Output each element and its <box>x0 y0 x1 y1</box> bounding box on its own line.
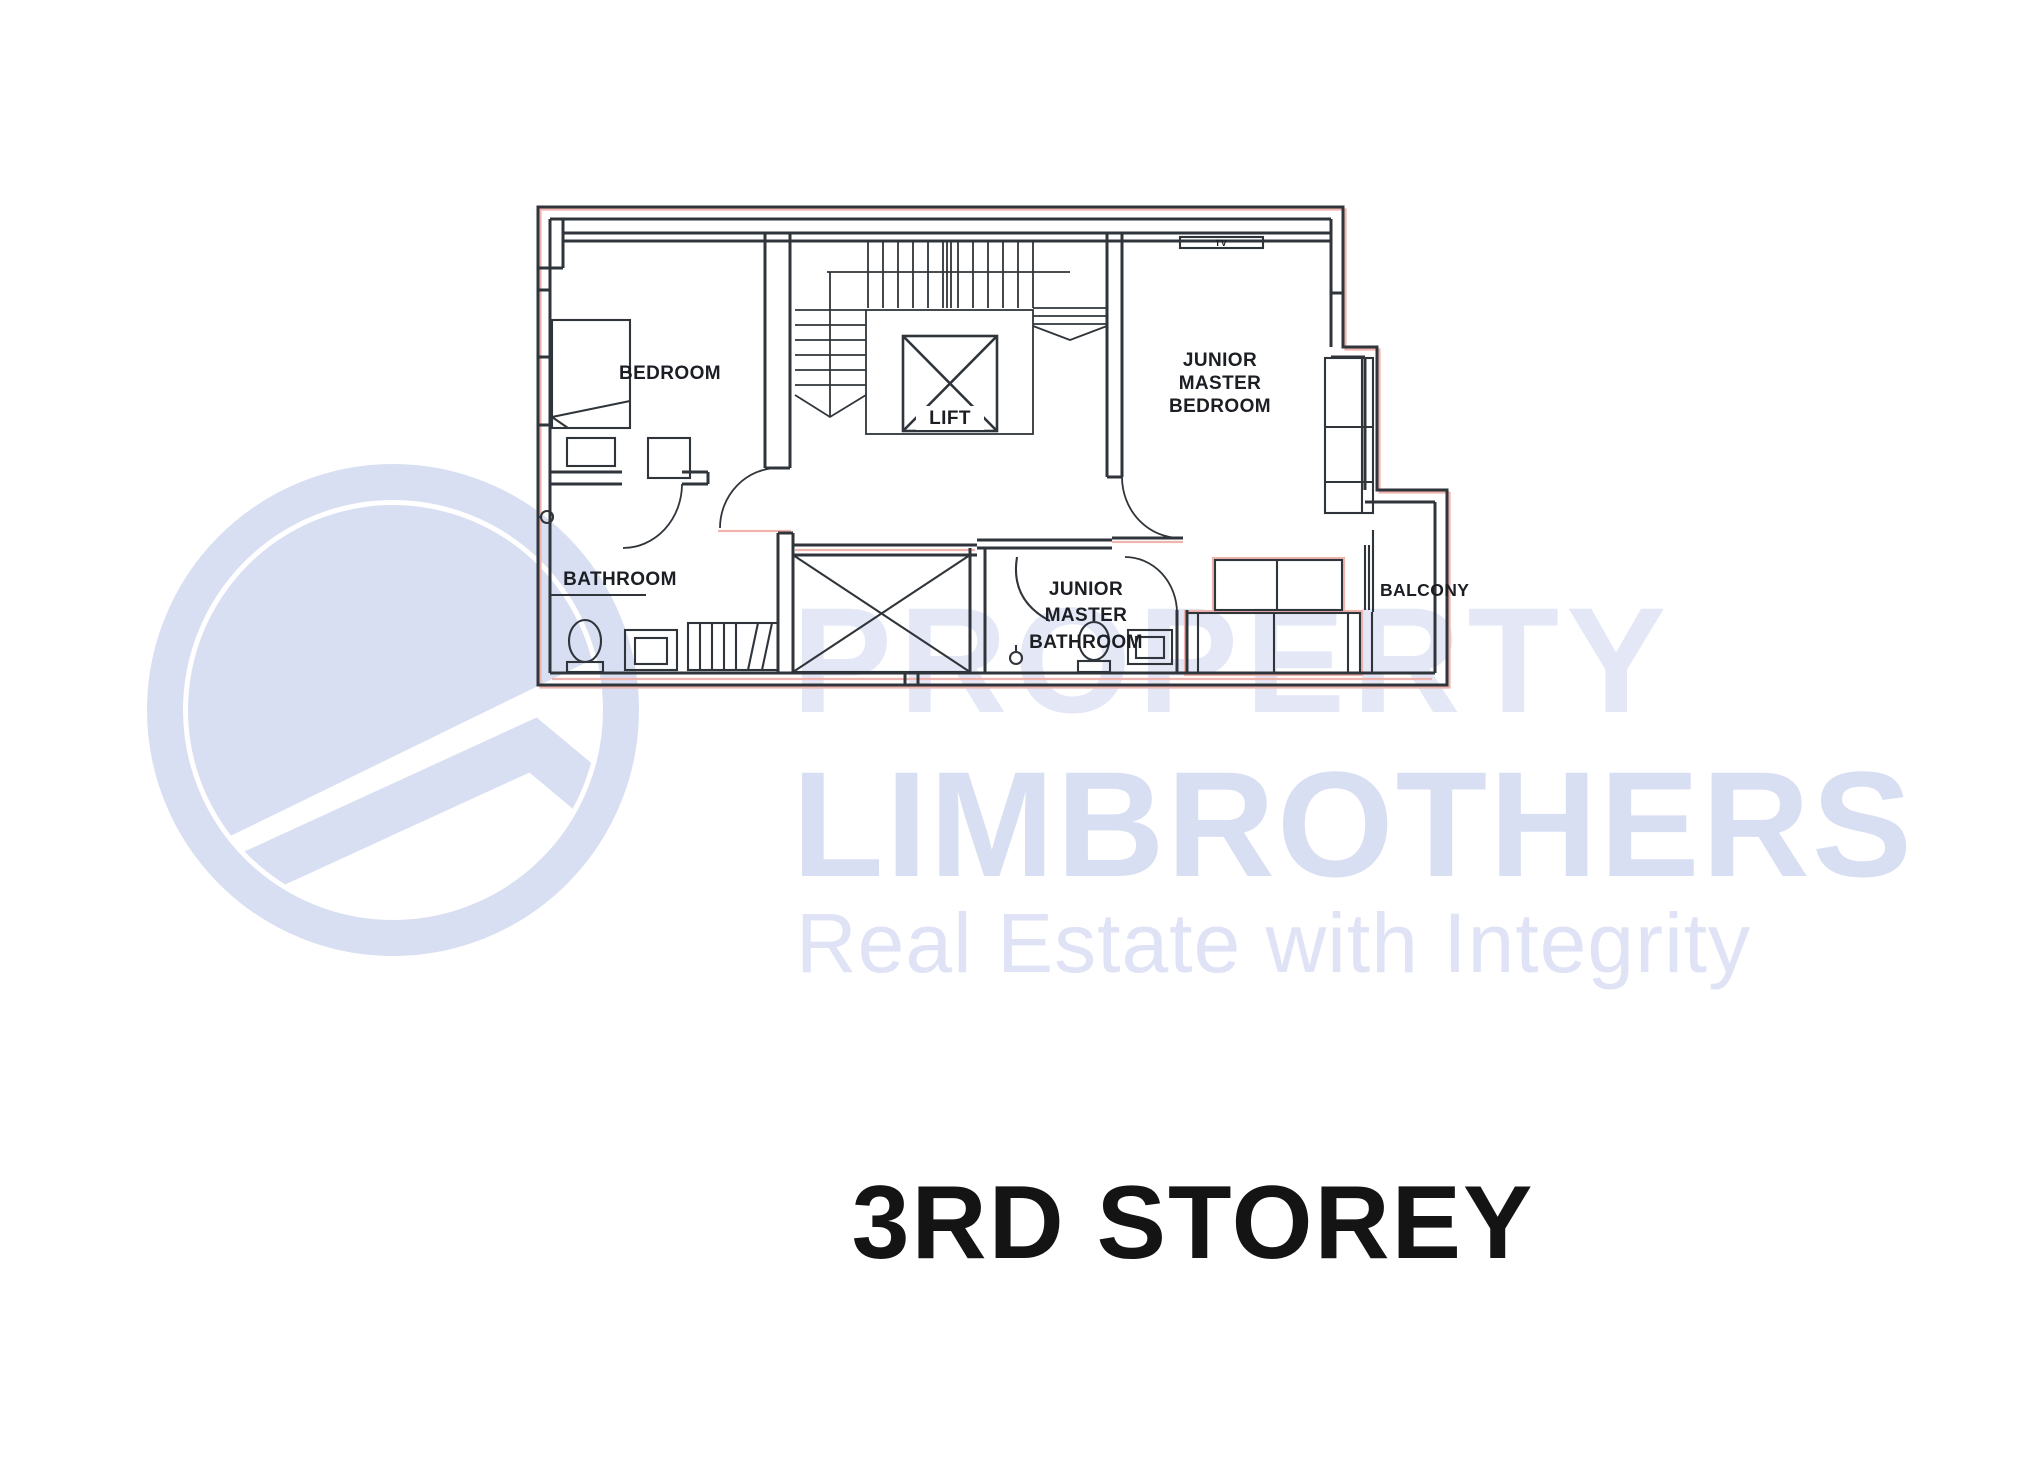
jmbr-door-arc <box>1122 477 1180 538</box>
page-title: 3RD STOREY <box>852 1165 1535 1281</box>
watermark-limbrothers-text: LIMBROTHERS <box>792 740 1914 908</box>
limbrothers-logo-icon <box>12 310 665 938</box>
jm-bathroom-label-line2: MASTER <box>1045 605 1128 626</box>
lift-label: LIFT <box>929 408 971 429</box>
tv-label: TV <box>1215 238 1227 248</box>
nightstand <box>567 438 615 466</box>
watermark-tagline-text: Real Estate with Integrity <box>796 896 1751 990</box>
bedroom-label: BEDROOM <box>619 363 721 384</box>
balcony-label: BALCONY <box>1380 580 1469 600</box>
jmbr-label-line2: MASTER <box>1179 373 1262 394</box>
jm-bathroom-label-line1: JUNIOR <box>1049 579 1123 600</box>
watermark-property-text: PROPERTY <box>792 576 1673 744</box>
stair-arrow2-icon <box>1033 326 1107 340</box>
staircase <box>795 241 1107 434</box>
hall-left-arch <box>720 468 778 528</box>
jmbr-label-line3: BEDROOM <box>1169 396 1271 417</box>
bathroom-door-arc <box>623 484 682 548</box>
shower-screen <box>688 623 778 670</box>
jmbr-label-line1: JUNIOR <box>1183 350 1257 371</box>
floor-plan-svg: PROPERTY LIMBROTHERS Real Estate with In… <box>0 0 2034 1482</box>
floor-plan-page: PROPERTY LIMBROTHERS Real Estate with In… <box>0 0 2034 1482</box>
jm-bathroom-label-line3: BATHROOM <box>1029 632 1143 653</box>
bathroom-label: BATHROOM <box>563 569 677 590</box>
